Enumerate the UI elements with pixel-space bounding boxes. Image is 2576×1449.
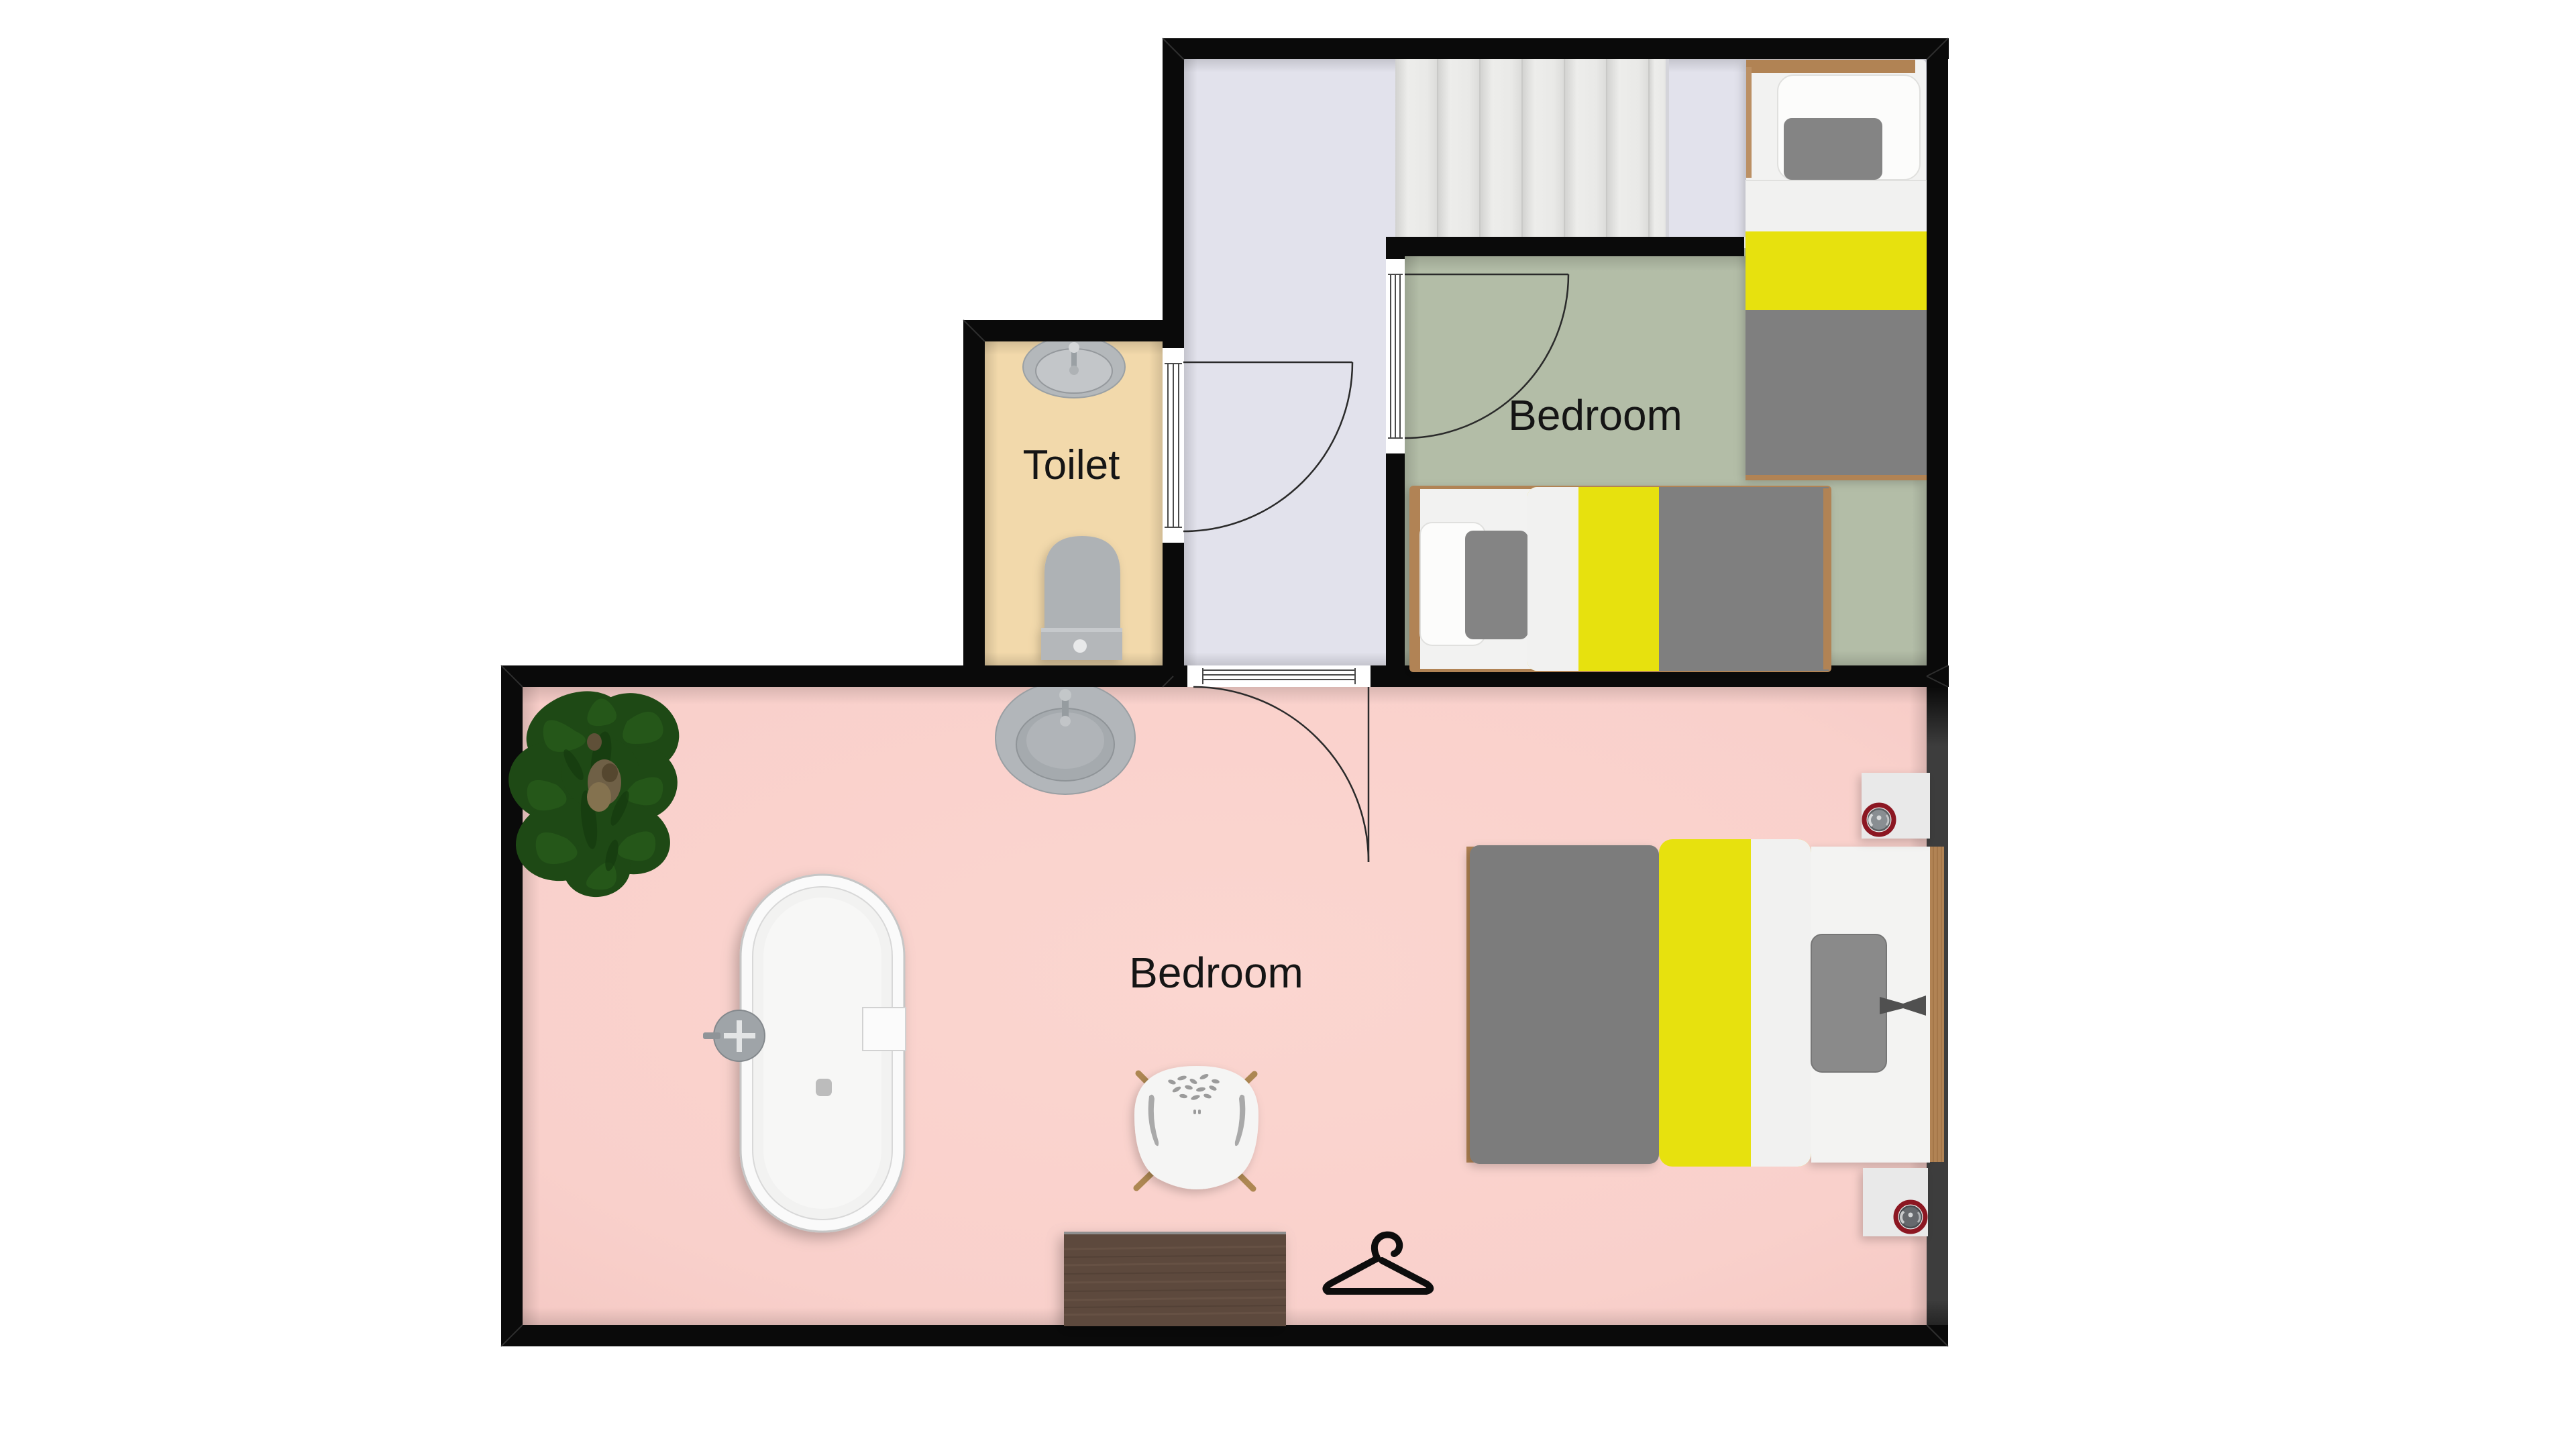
svg-text:Bedroom: Bedroom bbox=[1508, 391, 1682, 439]
svg-text:Bedroom: Bedroom bbox=[1129, 949, 1303, 997]
svg-text:Toilet: Toilet bbox=[1023, 442, 1120, 488]
